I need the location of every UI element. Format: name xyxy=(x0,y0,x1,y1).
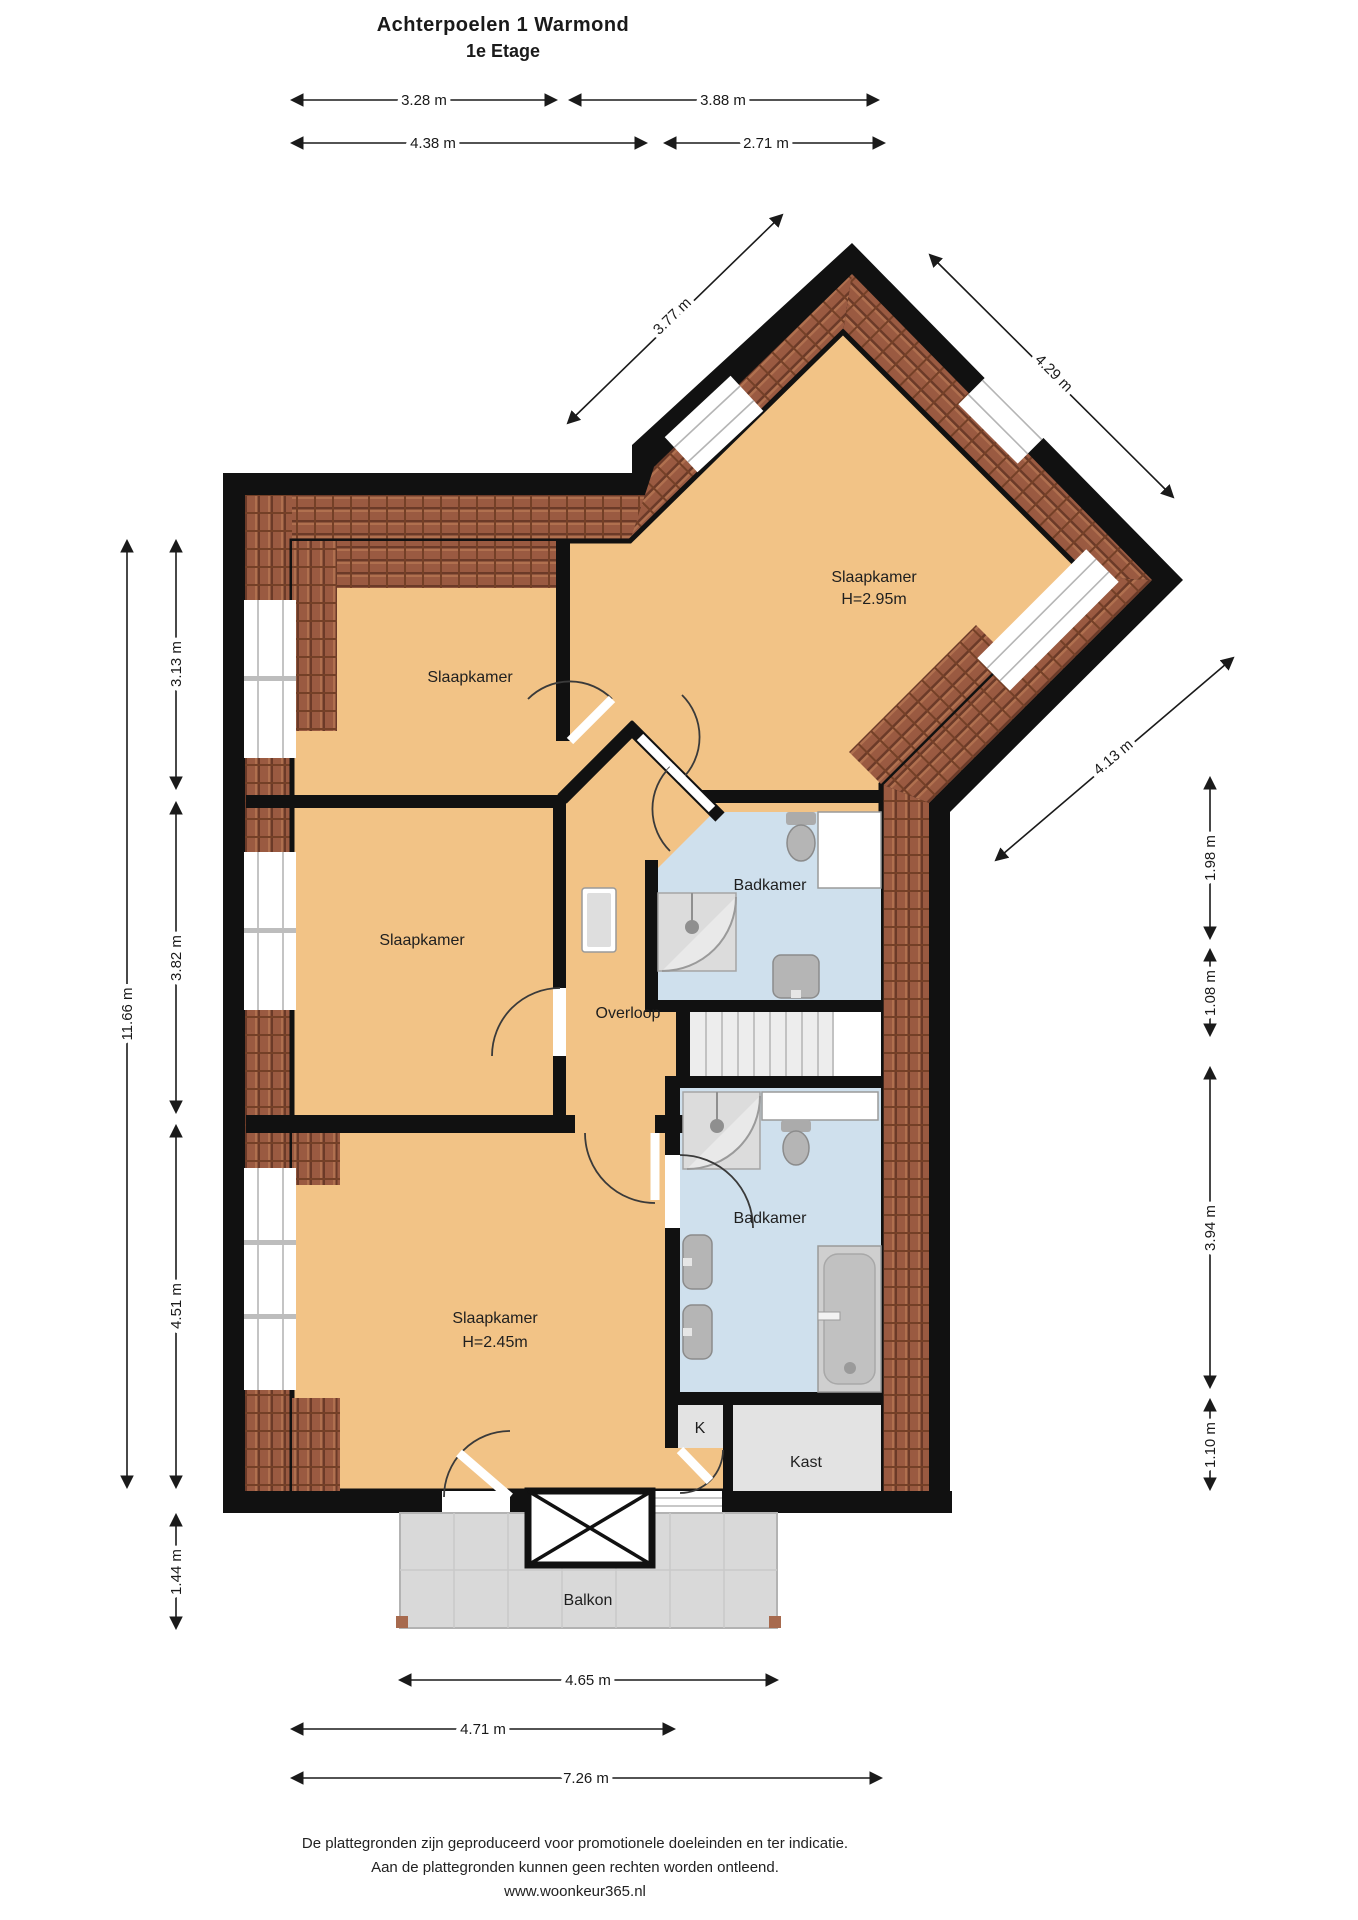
window xyxy=(244,600,296,758)
sink xyxy=(683,1235,712,1289)
staircase xyxy=(690,1012,881,1076)
roof-strip-right xyxy=(881,784,929,1491)
wall xyxy=(556,541,570,741)
stair-treads xyxy=(690,1012,833,1076)
dim-label: 3.82 m xyxy=(168,935,185,981)
wall xyxy=(645,1000,881,1012)
floorplan-page: Achterpoelen 1 Warmond 1e Etage xyxy=(0,0,1358,1920)
dim-label: 1.98 m xyxy=(1202,835,1219,881)
footer-line1: De plattegronden zijn geproduceerd voor … xyxy=(180,1832,970,1856)
room-label-bedroom-top-left: Slaapkamer xyxy=(427,669,513,686)
washstand xyxy=(762,1092,878,1120)
roof-strip-top xyxy=(245,495,649,541)
toilet xyxy=(781,1120,811,1165)
wall xyxy=(246,1115,575,1133)
room-label-closet-kast: Kast xyxy=(790,1454,823,1471)
bathtub xyxy=(818,1246,881,1392)
dim-label: 1.10 m xyxy=(1202,1422,1219,1468)
wall xyxy=(553,795,566,988)
balcony-post xyxy=(769,1616,781,1628)
dim-label: 4.38 m xyxy=(410,135,456,152)
dim-label: 4.65 m xyxy=(565,1672,611,1689)
dim-label: 4.29 m xyxy=(1031,351,1075,395)
dim-label: 4.13 m xyxy=(1090,736,1136,779)
window xyxy=(244,1168,296,1390)
balcony-post xyxy=(396,1616,408,1628)
shower xyxy=(683,1092,760,1169)
room-label-balcony: Balkon xyxy=(564,1592,613,1609)
dim-label: 4.71 m xyxy=(460,1721,506,1738)
shower xyxy=(658,893,736,971)
dim-label: 1.08 m xyxy=(1202,970,1219,1016)
closet-kast-floor xyxy=(733,1405,881,1491)
room-label-bedroom-bottom-height: H=2.45m xyxy=(462,1334,527,1351)
window xyxy=(655,1491,722,1513)
footer-disclaimer: De plattegronden zijn geproduceerd voor … xyxy=(180,1832,970,1904)
dim-label: 3.88 m xyxy=(700,92,746,109)
washstand xyxy=(818,812,881,888)
wall xyxy=(665,1076,881,1088)
wall xyxy=(723,1405,733,1491)
wall xyxy=(665,1405,678,1448)
room-label-bedroom-bottom: Slaapkamer xyxy=(452,1310,538,1327)
dim-label: 3.77 m xyxy=(650,294,695,338)
hall-cabinet xyxy=(582,888,616,952)
window xyxy=(244,852,296,1010)
windows-left xyxy=(244,600,296,1390)
room-label-bath-bottom: Badkamer xyxy=(734,1210,808,1227)
tile-patch xyxy=(292,1398,340,1491)
dim-label: 7.26 m xyxy=(563,1770,609,1787)
balcony-door-opening xyxy=(442,1491,510,1513)
room-label-hall: Overloop xyxy=(596,1005,661,1022)
room-label-bedroom-top-right-height: H=2.95m xyxy=(841,591,906,608)
room-label-bath-mid: Badkamer xyxy=(734,877,808,894)
dim-label: 3.28 m xyxy=(401,92,447,109)
toilet xyxy=(786,812,816,861)
sink xyxy=(683,1305,712,1359)
dim-label: 1.44 m xyxy=(168,1549,185,1595)
tile-patch xyxy=(292,541,337,731)
floorplan-drawing: Slaapkamer Slaapkamer H=2.95m Slaapkamer… xyxy=(0,0,1358,1920)
dim-label: 2.71 m xyxy=(743,135,789,152)
tile-patch xyxy=(292,1133,340,1185)
wall xyxy=(676,1012,690,1076)
dim-label: 3.13 m xyxy=(168,641,185,687)
sink xyxy=(773,955,819,998)
dim-label: 11.66 m xyxy=(119,987,136,1040)
wall xyxy=(246,795,566,808)
wall xyxy=(665,1228,680,1392)
wall xyxy=(700,790,881,803)
wall xyxy=(665,1392,881,1405)
room-label-bedroom-mid-left: Slaapkamer xyxy=(379,932,465,949)
footer-line3: www.woonkeur365.nl xyxy=(180,1880,970,1904)
wall xyxy=(665,1088,680,1155)
void-marker xyxy=(528,1491,652,1565)
building: Slaapkamer Slaapkamer H=2.95m Slaapkamer… xyxy=(223,243,1183,1628)
dim-label: 4.51 m xyxy=(168,1283,185,1329)
dim-label: 3.94 m xyxy=(1202,1205,1219,1251)
room-label-bedroom-top-right: Slaapkamer xyxy=(831,569,917,586)
wall xyxy=(645,860,658,1012)
room-label-closet-k: K xyxy=(695,1420,706,1437)
footer-line2: Aan de plattegronden kunnen geen rechten… xyxy=(180,1856,970,1880)
